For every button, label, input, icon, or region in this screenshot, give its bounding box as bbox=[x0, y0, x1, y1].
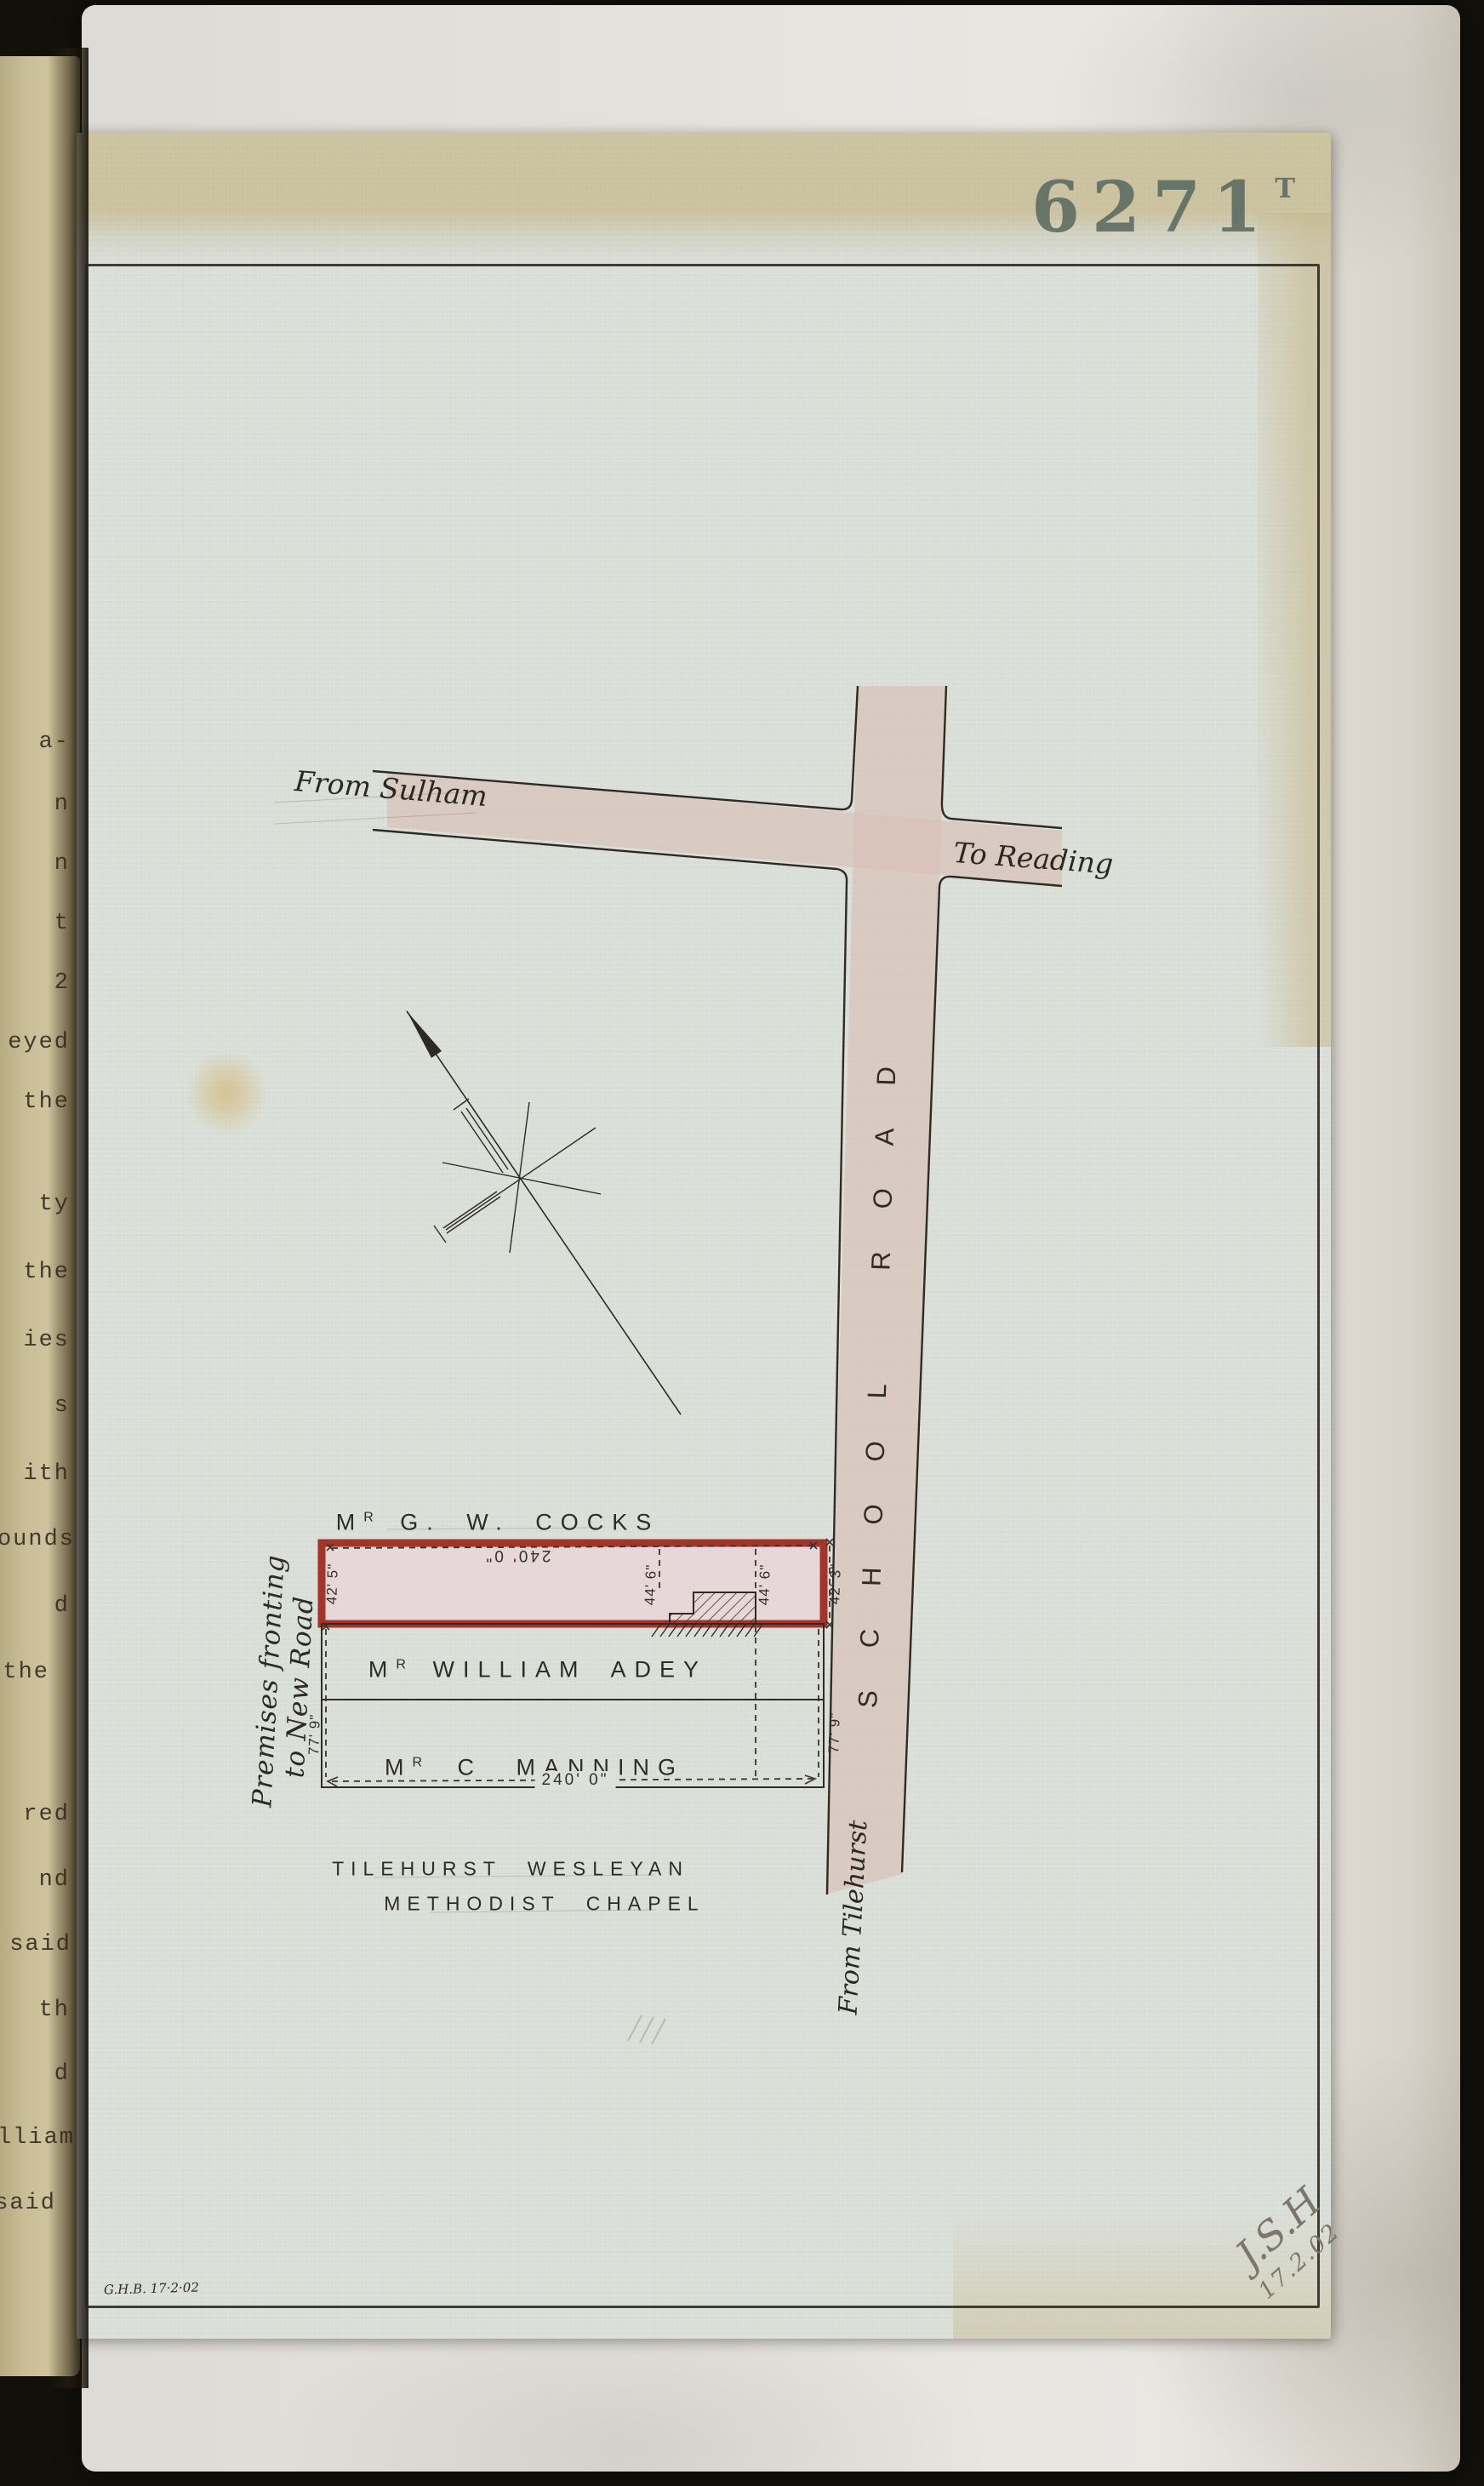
owner-title-sup: R bbox=[363, 1511, 375, 1525]
folio-number: 6271 bbox=[1031, 167, 1273, 249]
compass-star-icon bbox=[434, 1099, 601, 1253]
owner-title: M bbox=[385, 1755, 413, 1780]
plan-drawing bbox=[0, 0, 1484, 2486]
road-edge-bottom-left bbox=[373, 830, 847, 1895]
north-arrow-head bbox=[407, 1011, 442, 1058]
folio-number-suffix: T bbox=[1275, 172, 1295, 204]
north-arrow-icon bbox=[407, 1011, 681, 1414]
chapel-caption-line1: TILEHURST WESLEYAN bbox=[332, 1858, 689, 1881]
owner-title-sup: R bbox=[412, 1756, 424, 1770]
dim-building-right: 44' 6" bbox=[756, 1563, 774, 1605]
folio-number-stamp: 6271T bbox=[1031, 167, 1295, 249]
surveyor-initials-date: G.H.B. 17·2·02 bbox=[104, 2280, 199, 2298]
dim-frontage-top: 240' 0" bbox=[484, 1546, 551, 1564]
road-edge-top-right bbox=[942, 686, 1062, 828]
north-arrow-line bbox=[407, 1011, 681, 1414]
pencil-marks bbox=[628, 2015, 665, 2044]
owner-title-sup: R bbox=[396, 1658, 408, 1672]
owner-name: G. W. COCKS bbox=[400, 1510, 659, 1535]
chapel-caption-line2: METHODIST CHAPEL bbox=[384, 1893, 705, 1916]
plot-owner-adey: MR WILLIAM ADEY bbox=[368, 1657, 707, 1683]
scanned-plan-page: a-nnt2eyedthetytheiessithoundsdtherednds… bbox=[0, 0, 1484, 2486]
owner-title: M bbox=[368, 1657, 397, 1683]
dim-building-left: 44' 6" bbox=[642, 1563, 660, 1605]
dim-depth-right: 77' 9" bbox=[825, 1712, 844, 1753]
ruling-lines bbox=[274, 792, 655, 1912]
dim-frontage-bottom: 240' 0" bbox=[535, 1771, 616, 1790]
owner-name: WILLIAM ADEY bbox=[433, 1657, 708, 1683]
owner-title: M bbox=[336, 1510, 364, 1535]
dim-plot-right: 42' 3" bbox=[826, 1563, 845, 1604]
plot-owner-cocks: MR G. W. COCKS bbox=[336, 1510, 660, 1536]
dim-plot-left: 42' 5" bbox=[323, 1563, 342, 1604]
